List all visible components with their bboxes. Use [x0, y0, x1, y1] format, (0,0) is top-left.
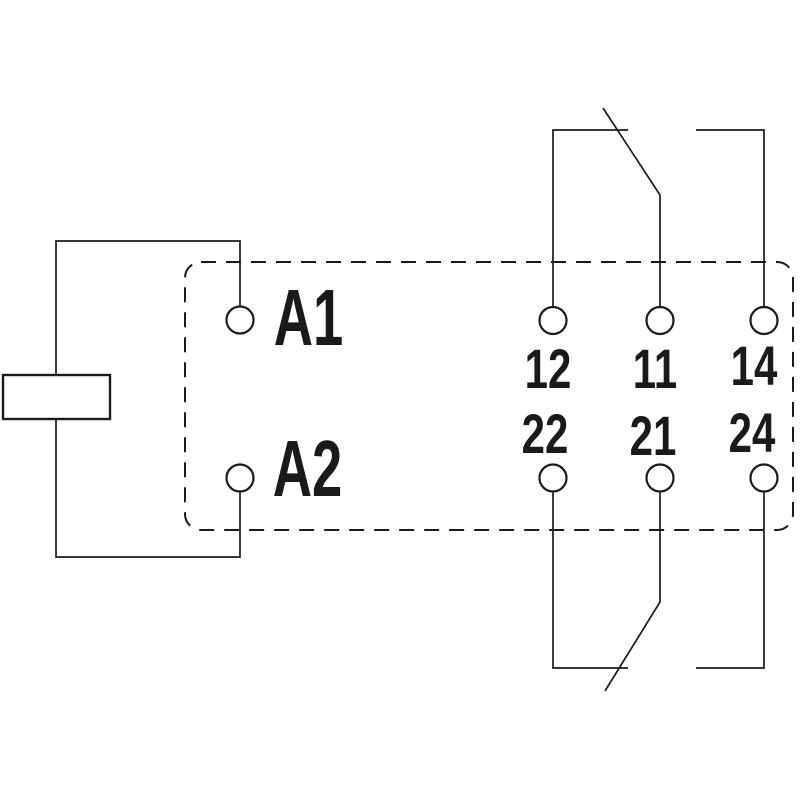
terminal-a2-label: A2: [273, 425, 343, 514]
terminal-11-circle: [647, 307, 674, 334]
terminal-21-label: 21: [630, 405, 677, 467]
terminal-22-circle: [540, 465, 567, 492]
contact-11-arm-top: [603, 108, 660, 307]
relay-schematic: A1 A2 12 11 14 22 21 24: [0, 0, 800, 800]
coil-symbol: [3, 375, 110, 419]
terminal-12-circle: [540, 307, 567, 334]
coil-wire-a2: [56, 419, 240, 557]
terminal-24-circle: [751, 465, 778, 492]
terminal-a1-label: A1: [274, 274, 344, 363]
terminal-12-label: 12: [525, 338, 572, 400]
schematic-canvas: A1 A2 12 11 14 22 21 24: [0, 0, 800, 800]
terminal-a1-circle: [227, 307, 254, 334]
contact-21-arm-bottom: [605, 492, 660, 691]
terminal-21-circle: [647, 465, 674, 492]
contact-24-no-wire: [696, 492, 764, 668]
terminal-11-label: 11: [633, 338, 677, 400]
terminal-22-label: 22: [522, 403, 569, 465]
terminal-a2-circle: [227, 465, 254, 492]
terminal-14-label: 14: [731, 335, 778, 397]
contact-22-nc-wire: [553, 492, 628, 668]
contact-12-nc-wire: [553, 130, 628, 307]
terminal-24-label: 24: [729, 402, 776, 464]
contact-14-no-wire: [696, 130, 764, 306]
terminal-14-circle: [751, 307, 778, 334]
